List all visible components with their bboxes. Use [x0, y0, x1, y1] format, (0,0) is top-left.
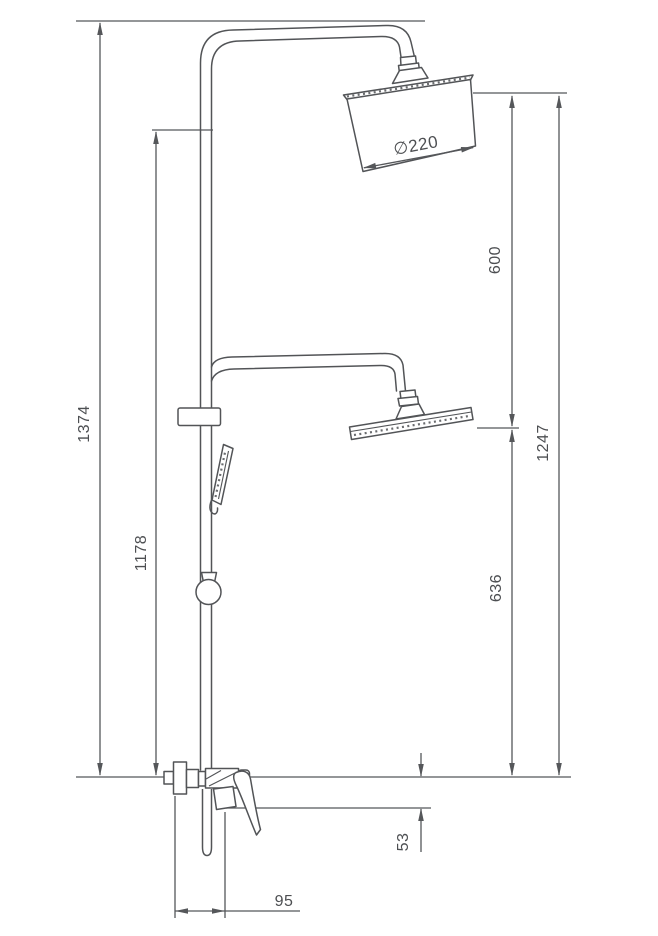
hand-shower	[210, 445, 233, 514]
mixer-lever	[234, 771, 261, 835]
wall-connector	[164, 772, 174, 785]
dim-label-head-spacing: 600	[487, 246, 504, 274]
shower-column: ∅220	[164, 25, 476, 855]
mixer-nut-2	[199, 772, 206, 787]
lower-shower-arm	[212, 353, 406, 391]
dim-label-spout-drop: 53	[395, 833, 412, 852]
dimension-labels: 1374 1178 600 1247 636 53 95	[76, 246, 552, 910]
dim-label-total-height: 1374	[76, 405, 93, 443]
dim-label-wall-offset: 95	[275, 893, 294, 910]
mixer-nut	[187, 770, 199, 788]
dimension-total-height	[97, 22, 103, 776]
lower-head-connector	[396, 390, 425, 419]
shower-technical-drawing: 1374 1178 600 1247 636 53 95	[0, 0, 658, 936]
dimension-lines	[76, 21, 571, 918]
dimension-head-spacing	[509, 95, 515, 427]
dimension-lower-head-height	[509, 429, 515, 776]
diverter-box	[214, 787, 237, 810]
drawing-canvas: 1374 1178 600 1247 636 53 95	[0, 0, 658, 936]
dimension-column-height	[556, 95, 562, 776]
dim-label-rail-height: 1178	[133, 535, 150, 571]
top-shower-head: ∅220	[344, 75, 476, 172]
top-head-mount	[393, 68, 429, 84]
wall-flange	[174, 762, 187, 794]
drop-tube	[203, 789, 212, 856]
dim-label-lower-head-height: 636	[488, 574, 505, 602]
dim-label-column-height: 1247	[535, 424, 552, 462]
dimension-rail-height	[153, 131, 159, 776]
slider-bracket	[178, 408, 221, 426]
top-head-connector	[393, 56, 429, 84]
mixer-valve	[164, 762, 261, 856]
